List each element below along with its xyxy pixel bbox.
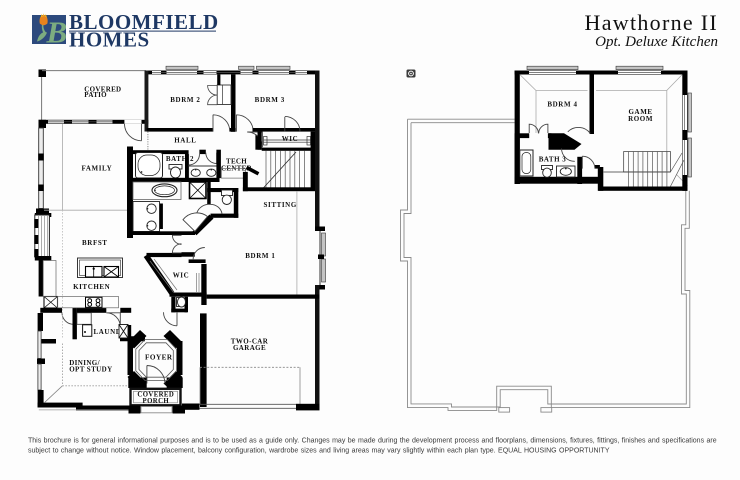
svg-text:BDRM 3: BDRM 3 xyxy=(255,96,285,104)
svg-text:FOYER: FOYER xyxy=(145,354,173,362)
svg-text:BATH 2: BATH 2 xyxy=(166,155,194,163)
svg-text:subject to change without noti: subject to change without notice. Window… xyxy=(28,448,610,455)
svg-text:FAMILY: FAMILY xyxy=(81,165,112,173)
svg-text:BDRM 2: BDRM 2 xyxy=(170,96,200,104)
svg-text:PORCH: PORCH xyxy=(143,398,170,405)
svg-text:Hawthorne II: Hawthorne II xyxy=(585,10,719,35)
svg-text:PATIO: PATIO xyxy=(84,91,107,99)
svg-text:WIC: WIC xyxy=(282,135,299,143)
svg-text:ROOM: ROOM xyxy=(628,115,653,123)
svg-text:B: B xyxy=(46,15,68,50)
svg-text:KITCHEN: KITCHEN xyxy=(73,283,110,291)
svg-text:OPT STUDY: OPT STUDY xyxy=(69,365,112,373)
svg-text:Opt. Deluxe Kitchen: Opt. Deluxe Kitchen xyxy=(595,34,718,50)
svg-text:BDRM 1: BDRM 1 xyxy=(245,252,275,260)
svg-text:HALL: HALL xyxy=(174,137,196,145)
svg-text:WIC: WIC xyxy=(173,272,190,280)
svg-text:BRFST: BRFST xyxy=(82,239,108,247)
svg-text:LAUND: LAUND xyxy=(94,328,122,336)
svg-text:This brochure is for general i: This brochure is for general information… xyxy=(28,438,717,445)
svg-text:GARAGE: GARAGE xyxy=(233,344,266,352)
svg-text:BATH 3: BATH 3 xyxy=(539,155,567,163)
svg-text:BDRM 4: BDRM 4 xyxy=(547,101,577,109)
svg-text:SITTING: SITTING xyxy=(264,201,297,209)
svg-text:HOMES: HOMES xyxy=(69,28,150,52)
